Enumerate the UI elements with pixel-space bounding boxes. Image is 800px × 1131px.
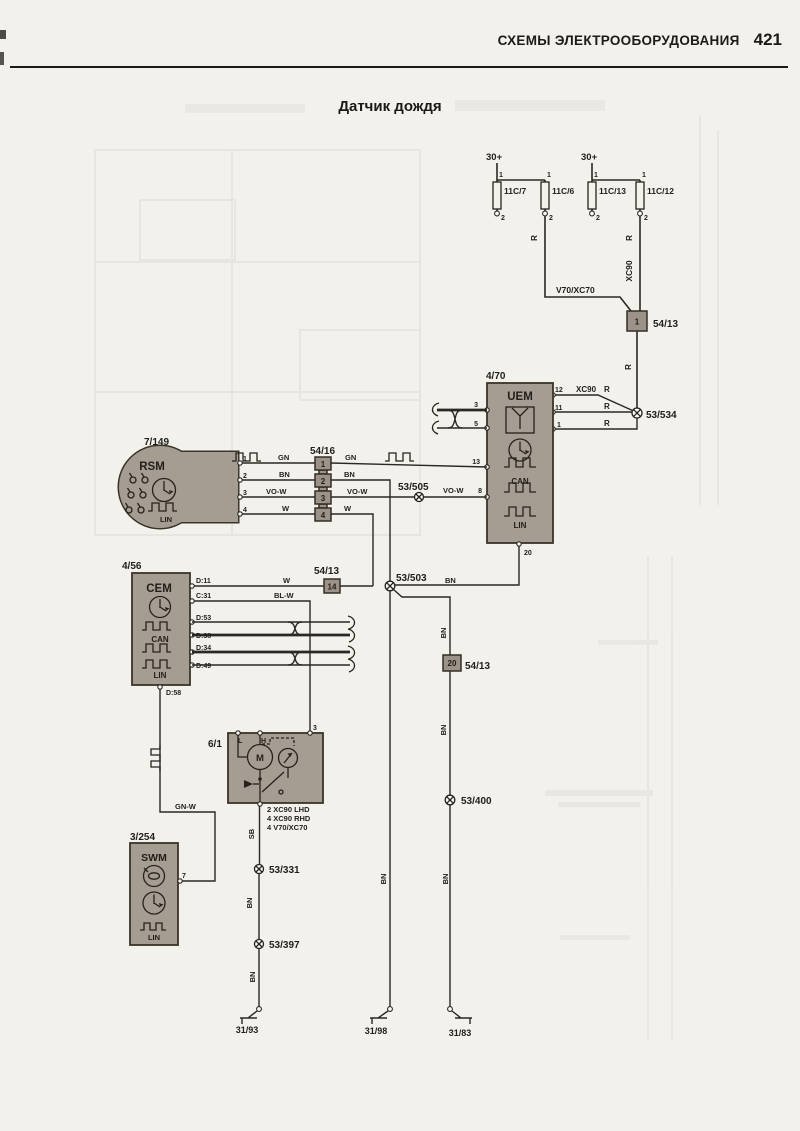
signal-waveform xyxy=(385,453,414,461)
pin-label-f1-1: 1 xyxy=(499,172,503,179)
variant-note-3: 4 V70/XC70 xyxy=(267,823,307,832)
pin-label-f2-2: 2 xyxy=(549,215,553,222)
pin-label-f3-2: 2 xyxy=(596,215,600,222)
pin-label-uem-1: 1 xyxy=(557,422,561,429)
connector-54-16-pin3: 3 xyxy=(321,494,326,503)
wire-label-bn-1: BN xyxy=(279,470,290,479)
ground-label-31-93: 31/93 xyxy=(236,1025,259,1035)
fuse-label-11c7: 11C/7 xyxy=(504,186,526,196)
splice-label-53-534: 53/534 xyxy=(646,410,677,421)
wire-bn-branch xyxy=(394,590,451,1008)
splice-53-397-icon xyxy=(255,940,264,949)
pin-label-cem-d53: D:53 xyxy=(196,615,211,622)
wire-uem-pin12 xyxy=(553,395,633,411)
pin-label-uem-13: 13 xyxy=(472,459,480,466)
pin-label-cem-d34: D:34 xyxy=(196,645,211,652)
uem-name: UEM xyxy=(507,391,533,403)
wire-label-r-3: R xyxy=(624,364,633,370)
splice-label-53-331: 53/331 xyxy=(269,865,300,876)
pin-label-f3-1: 1 xyxy=(594,172,598,179)
wire-uem-pin1 xyxy=(553,418,637,429)
pin-label-f4-2: 2 xyxy=(644,215,648,222)
wire-label-blw: BL-W xyxy=(274,591,294,600)
connector-pin-54-13-low: 20 xyxy=(448,659,457,668)
motor-letter: M xyxy=(256,753,264,764)
wire-gn-to-uem13 xyxy=(331,463,487,467)
fuse-label-11c6: 11C/6 xyxy=(552,186,574,196)
fuse-label-11c12: 11C/12 xyxy=(647,186,674,196)
pin-label-cem-d58: D:58 xyxy=(166,690,181,697)
wire-label-bn-9: BN xyxy=(248,972,257,983)
cem-name: CEM xyxy=(146,583,172,595)
splice-53-505-icon xyxy=(415,493,424,502)
pin-label-uem-3: 3 xyxy=(474,402,478,409)
cem-lin-label: LIN xyxy=(154,671,167,680)
connector-54-16-pin2: 2 xyxy=(321,477,326,486)
rsm-name: RSM xyxy=(139,461,165,473)
pin-label-f4-1: 1 xyxy=(642,172,646,179)
pin-label-uem-12: 12 xyxy=(555,387,563,394)
wire-label-r-1: R xyxy=(530,235,539,241)
wire-label-gnw: GN-W xyxy=(175,802,197,811)
supply-label-left: 30+ xyxy=(486,152,503,163)
fuse-icon-11c7 xyxy=(493,182,501,209)
pin-label-motor-3: 3 xyxy=(313,725,317,732)
rsm-block xyxy=(119,446,242,528)
connector-pin-54-13-mid: 14 xyxy=(328,583,337,592)
wire-label-w-1: W xyxy=(282,504,290,513)
ground-label-31-83: 31/83 xyxy=(449,1028,472,1038)
pin-label-f2-1: 1 xyxy=(547,172,551,179)
pin-label-uem-20: 20 xyxy=(524,550,532,557)
splice-53-400-icon xyxy=(445,795,455,805)
pin-label-cem-d11: D:11 xyxy=(196,578,211,585)
pin-label-rsm-1: 1 xyxy=(243,456,247,463)
ground-label-31-98: 31/98 xyxy=(365,1026,388,1036)
wire-label-bn-7: BN xyxy=(441,874,450,885)
wire-label-r-2: R xyxy=(625,235,634,241)
splice-53-331-icon xyxy=(255,865,264,874)
wire-label-bn-3: BN xyxy=(445,576,456,585)
supply-label-right: 30+ xyxy=(581,152,598,163)
wire-label-bn-2: BN xyxy=(344,470,355,479)
wire-label-vow-1: VO-W xyxy=(266,487,287,496)
pin-label-cem-d38: D:38 xyxy=(196,633,211,640)
wire-label-gn-2: GN xyxy=(345,453,356,462)
wire-label-r-5: R xyxy=(604,402,610,411)
connector-54-16-pin1: 1 xyxy=(321,460,326,469)
wiring-diagram: 30+ 30+ 11C/7 11C/6 11C/13 11C/12 54/13 … xyxy=(0,0,800,1131)
fuse-icon-11c6 xyxy=(541,182,549,209)
wire-label-vow-2: VO-W xyxy=(347,487,368,496)
uem-twisted-pair xyxy=(432,403,487,434)
swm-id: 3/254 xyxy=(130,832,155,843)
wire-label-bn-4: BN xyxy=(439,628,448,639)
pin-label-motor-l: L xyxy=(238,738,243,745)
fuse-icon-11c12 xyxy=(636,182,644,209)
wire-sb-bn-ground1 xyxy=(259,806,260,1007)
splice-label-53-397: 53/397 xyxy=(269,940,300,951)
pin-label-uem-11: 11 xyxy=(555,405,563,412)
cem-id: 4/56 xyxy=(122,561,142,572)
uem-lin-label: LIN xyxy=(514,521,527,530)
ground-31-93 xyxy=(240,1007,261,1024)
splice-label-53-400: 53/400 xyxy=(461,796,492,807)
splice-label-53-503: 53/503 xyxy=(396,573,427,584)
pin-label-uem-8: 8 xyxy=(478,488,482,495)
wire-label-w-3: W xyxy=(283,576,291,585)
connector-label-54-16: 54/16 xyxy=(310,446,335,457)
pin-label-uem-5: 5 xyxy=(474,421,478,428)
splice-53-503-icon xyxy=(385,581,395,591)
wire-label-r-4: R xyxy=(604,385,610,394)
wire-label-xc90-horizontal: XC90 xyxy=(576,385,597,394)
swm-name: SWM xyxy=(141,852,167,864)
pin-label-cem-c31: C:31 xyxy=(196,593,211,600)
wire-label-bn-6: BN xyxy=(379,874,388,885)
connector-54-16-pin4: 4 xyxy=(321,511,326,520)
uem-id: 4/70 xyxy=(486,371,506,382)
uem-can-label: CAN xyxy=(511,477,529,486)
wire-label-r-6: R xyxy=(604,419,610,428)
connector-label-54-13-low: 54/13 xyxy=(465,661,490,672)
rsm-id: 7/149 xyxy=(144,437,169,448)
connector-pin-54-13-top: 1 xyxy=(635,318,640,327)
pin-label-rsm-3: 3 xyxy=(243,490,247,497)
ground-31-98 xyxy=(370,1007,392,1024)
connector-label-54-13-mid: 54/13 xyxy=(314,566,339,577)
splice-53-534-icon xyxy=(632,408,642,418)
pin-label-rsm-4: 4 xyxy=(243,507,247,514)
pin-label-cem-d49: D:49 xyxy=(196,663,211,670)
pin-label-f1-2: 2 xyxy=(501,215,505,222)
ground-31-83 xyxy=(448,1007,472,1024)
wire-label-sb: SB xyxy=(247,828,256,839)
pin-label-swm-7: 7 xyxy=(182,873,186,880)
lin-signal-waveform xyxy=(151,745,160,771)
connector-label-54-13-top: 54/13 xyxy=(653,319,678,330)
wire-label-v70xc70: V70/XC70 xyxy=(556,285,595,295)
wire-label-bn-5: BN xyxy=(439,725,448,736)
wire-label-bn-8: BN xyxy=(245,898,254,909)
cem-can-label: CAN xyxy=(151,635,169,644)
pin-label-rsm-2: 2 xyxy=(243,473,247,480)
wiper-motor-id: 6/1 xyxy=(208,739,222,750)
variant-note-1: 2 XC90 LHD xyxy=(267,805,310,814)
wire-label-gn-1: GN xyxy=(278,453,289,462)
splice-label-53-505: 53/505 xyxy=(398,482,429,493)
scan-edge-marks xyxy=(0,30,6,65)
pin-label-motor-h: H xyxy=(261,738,266,745)
wire-label-vow-3: VO-W xyxy=(443,486,464,495)
wire-label-xc90-vertical: XC90 xyxy=(624,260,634,282)
swm-lin-label: LIN xyxy=(148,933,160,942)
rsm-lin-label: LIN xyxy=(160,515,172,524)
cem-twisted-pairs xyxy=(192,616,355,672)
fuse-icon-11c13 xyxy=(588,182,596,209)
variant-note-2: 4 XC90 RHD xyxy=(267,814,311,823)
wire-v70xc70-feed xyxy=(545,216,631,311)
wire-label-w-2: W xyxy=(344,504,352,513)
manual-page: СХЕМЫ ЭЛЕКТРООБОРУДОВАНИЯ 421 Датчик дож… xyxy=(0,0,800,1131)
fuse-label-11c13: 11C/13 xyxy=(599,186,626,196)
